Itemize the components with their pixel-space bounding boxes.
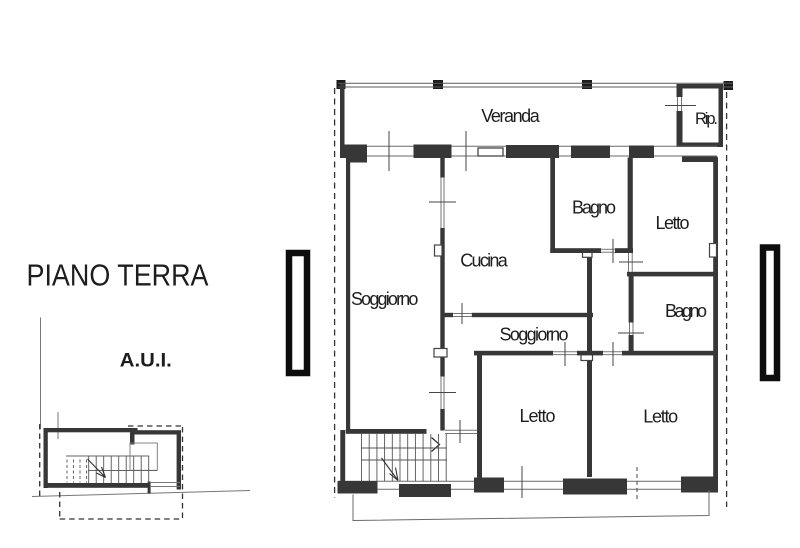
svg-text:Soggiorno: Soggiorno	[500, 325, 569, 345]
svg-text:Bagno: Bagno	[572, 198, 616, 218]
svg-text:Rip.: Rip.	[695, 110, 718, 128]
svg-text:Veranda: Veranda	[481, 106, 540, 126]
svg-text:Cucina: Cucina	[460, 251, 508, 271]
svg-text:PIANO TERRA: PIANO TERRA	[27, 259, 210, 293]
svg-text:Bagno: Bagno	[665, 301, 707, 321]
svg-text:Letto: Letto	[520, 406, 556, 426]
svg-text:A.U.I.: A.U.I.	[120, 349, 172, 371]
svg-text:Letto: Letto	[643, 407, 678, 427]
svg-text:Letto: Letto	[656, 213, 690, 233]
svg-text:Soggiorno: Soggiorno	[351, 289, 419, 309]
